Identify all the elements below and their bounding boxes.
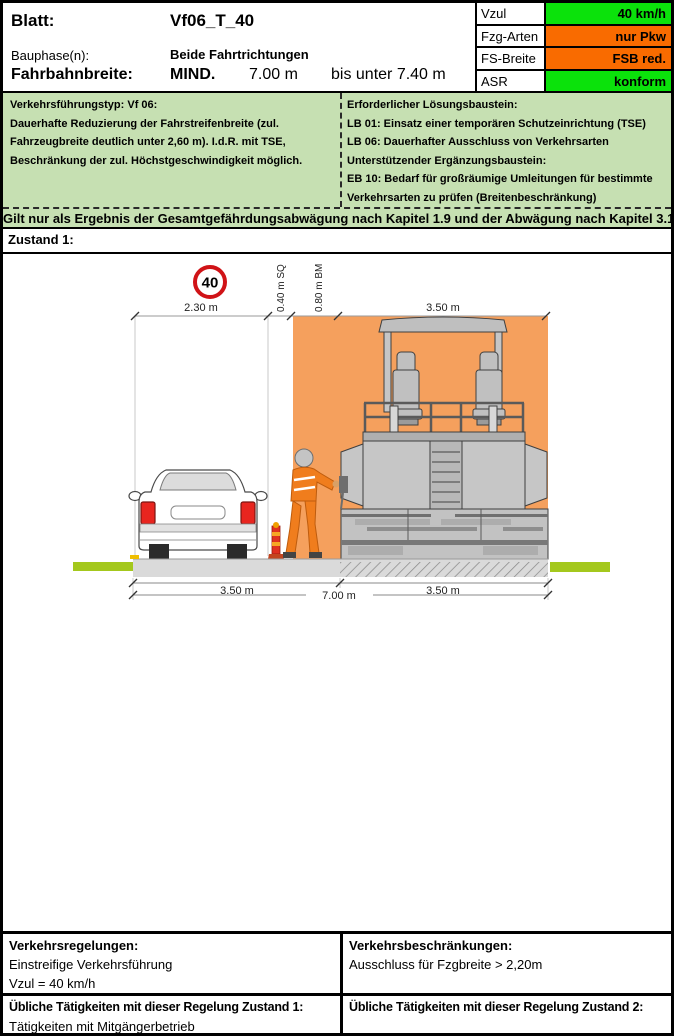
sheet: Blatt: Vf06_T_40 Bauphase(n): Beide Fahr… (0, 0, 674, 1036)
verkehrsbeschraenkungen-title: Verkehrsbeschränkungen: (349, 936, 671, 955)
info-section: Verkehrsführungstyp: Vf 06: Dauerhafte R… (3, 93, 671, 209)
table-row: Übliche Tätigkeiten mit dieser Regelung … (3, 993, 671, 1036)
fahrbahnbreite-label: Fahrbahnbreite: (11, 66, 133, 84)
taetigkeiten-zustand1-title: Übliche Tätigkeiten mit dieser Regelung … (9, 998, 340, 1017)
taetigkeiten-zustand2-title: Übliche Tätigkeiten mit dieser Regelung … (349, 998, 671, 1017)
info-line: LB 06: Dauerhafter Ausschluss von Verkeh… (347, 133, 671, 152)
info-line: Erforderlicher Lösungsbaustein: (347, 96, 671, 115)
table-row: Verkehrsregelungen: Einstreifige Verkehr… (3, 934, 671, 993)
table-row: Vzul 40 km/h (477, 3, 671, 26)
header-left: Blatt: Vf06_T_40 Bauphase(n): Beide Fahr… (3, 3, 475, 91)
fzg-arten-value: nur Pkw (544, 26, 671, 47)
fs-breite-label: FS-Breite (477, 48, 544, 69)
verkehrsbeschraenkungen-cell: Verkehrsbeschränkungen: Ausschluss für F… (340, 934, 671, 993)
dim-car-width: 2.30 m (184, 302, 218, 314)
bauphase-value: Beide Fahrtrichtungen (170, 47, 309, 62)
table-row: FS-Breite FSB red. (477, 48, 671, 71)
dim-machine-width: 3.50 m (426, 302, 460, 314)
fahrbahnbreite-mind: MIND. (170, 66, 215, 84)
fahrbahnbreite-range: bis unter 7.40 m (331, 66, 446, 84)
vzul-label: Vzul (477, 3, 544, 24)
taetigkeiten-zustand2-cell: Übliche Tätigkeiten mit dieser Regelung … (340, 996, 671, 1036)
info-line: LB 01: Einsatz einer temporären Schutzei… (347, 115, 671, 134)
taetigkeiten-zustand1-value: Tätigkeiten mit Mitgängerbetrieb (9, 1017, 340, 1036)
svg-text:40: 40 (202, 275, 219, 292)
bottom-dimension-lines: 3.50 m 3.50 m 7.00 m (129, 578, 552, 602)
taetigkeiten-zustand1-cell: Übliche Tätigkeiten mit dieser Regelung … (3, 996, 340, 1036)
fzg-arten-label: Fzg-Arten (477, 26, 544, 47)
info-line: Fahrzeugbreite deutlich unter 2,60 m). I… (10, 133, 340, 152)
zustand-label: Zustand 1: (3, 229, 671, 254)
dim-bm: 0.80 m BM (314, 264, 325, 312)
loesungsbaustein-text: Erforderlicher Lösungsbaustein: LB 01: E… (340, 93, 671, 207)
vzul-value: 40 km/h (544, 3, 671, 24)
info-line: Unterstützender Ergänzungsbaustein: (347, 152, 671, 171)
car-graphic (129, 470, 267, 559)
road-marking (130, 555, 139, 559)
status-table: Vzul 40 km/h Fzg-Arten nur Pkw FS-Breite… (475, 3, 671, 91)
dim-lane-right: 3.50 m (426, 585, 460, 597)
info-line: EB 10: Bedarf für großräumige Umleitunge… (347, 170, 671, 189)
asr-value: konform (544, 71, 671, 92)
header: Blatt: Vf06_T_40 Bauphase(n): Beide Fahr… (3, 3, 671, 93)
info-line: Verkehrsführungstyp: Vf 06: (10, 96, 340, 115)
dim-total: 7.00 m (322, 590, 356, 602)
bottom-tables: Verkehrsregelungen: Einstreifige Verkehr… (3, 931, 671, 1033)
verkehrsregelungen-line: Vzul = 40 km/h (9, 974, 340, 993)
verge-left (73, 562, 133, 571)
blatt-label: Blatt: (11, 11, 54, 31)
delineator-post (268, 522, 284, 559)
bauphase-label: Bauphase(n): (11, 48, 89, 63)
dim-lane-left: 3.50 m (220, 585, 254, 597)
verkehrsregelungen-title: Verkehrsregelungen: (9, 936, 340, 955)
scope-note: Gilt nur als Ergebnis der Gesamtgefährdu… (3, 209, 671, 229)
info-line: Beschränkung der zul. Höchstgeschwindigk… (10, 152, 340, 171)
verkehrsregelungen-line: Einstreifige Verkehrsführung (9, 955, 340, 974)
dim-sq: 0.40 m SQ (276, 264, 287, 312)
table-row: ASR konform (477, 71, 671, 92)
verkehrsfuehrungstyp-text: Verkehrsführungstyp: Vf 06: Dauerhafte R… (3, 93, 340, 207)
info-line: Verkehrsarten zu prüfen (Breitenbeschrän… (347, 189, 671, 208)
verkehrsregelungen-cell: Verkehrsregelungen: Einstreifige Verkehr… (3, 934, 340, 993)
verkehrsbeschraenkungen-line: Ausschluss für Fzgbreite > 2,20m (349, 955, 671, 974)
fahrbahnbreite-min-value: 7.00 m (249, 66, 298, 84)
work-area-hatch (340, 562, 548, 577)
speed-limit-sign: 40 (195, 267, 225, 297)
verge-right (550, 562, 610, 572)
sheet-id: Vf06_T_40 (170, 11, 254, 31)
diagram-svg: 40 2.30 m 3.50 m 0.40 m SQ 0.80 m BM (3, 256, 674, 611)
cross-section-diagram: 40 2.30 m 3.50 m 0.40 m SQ 0.80 m BM (3, 254, 671, 931)
asr-label: ASR (477, 71, 544, 92)
table-row: Fzg-Arten nur Pkw (477, 26, 671, 49)
info-line: Dauerhafte Reduzierung der Fahrstreifenb… (10, 115, 340, 134)
fs-breite-value: FSB red. (544, 48, 671, 69)
